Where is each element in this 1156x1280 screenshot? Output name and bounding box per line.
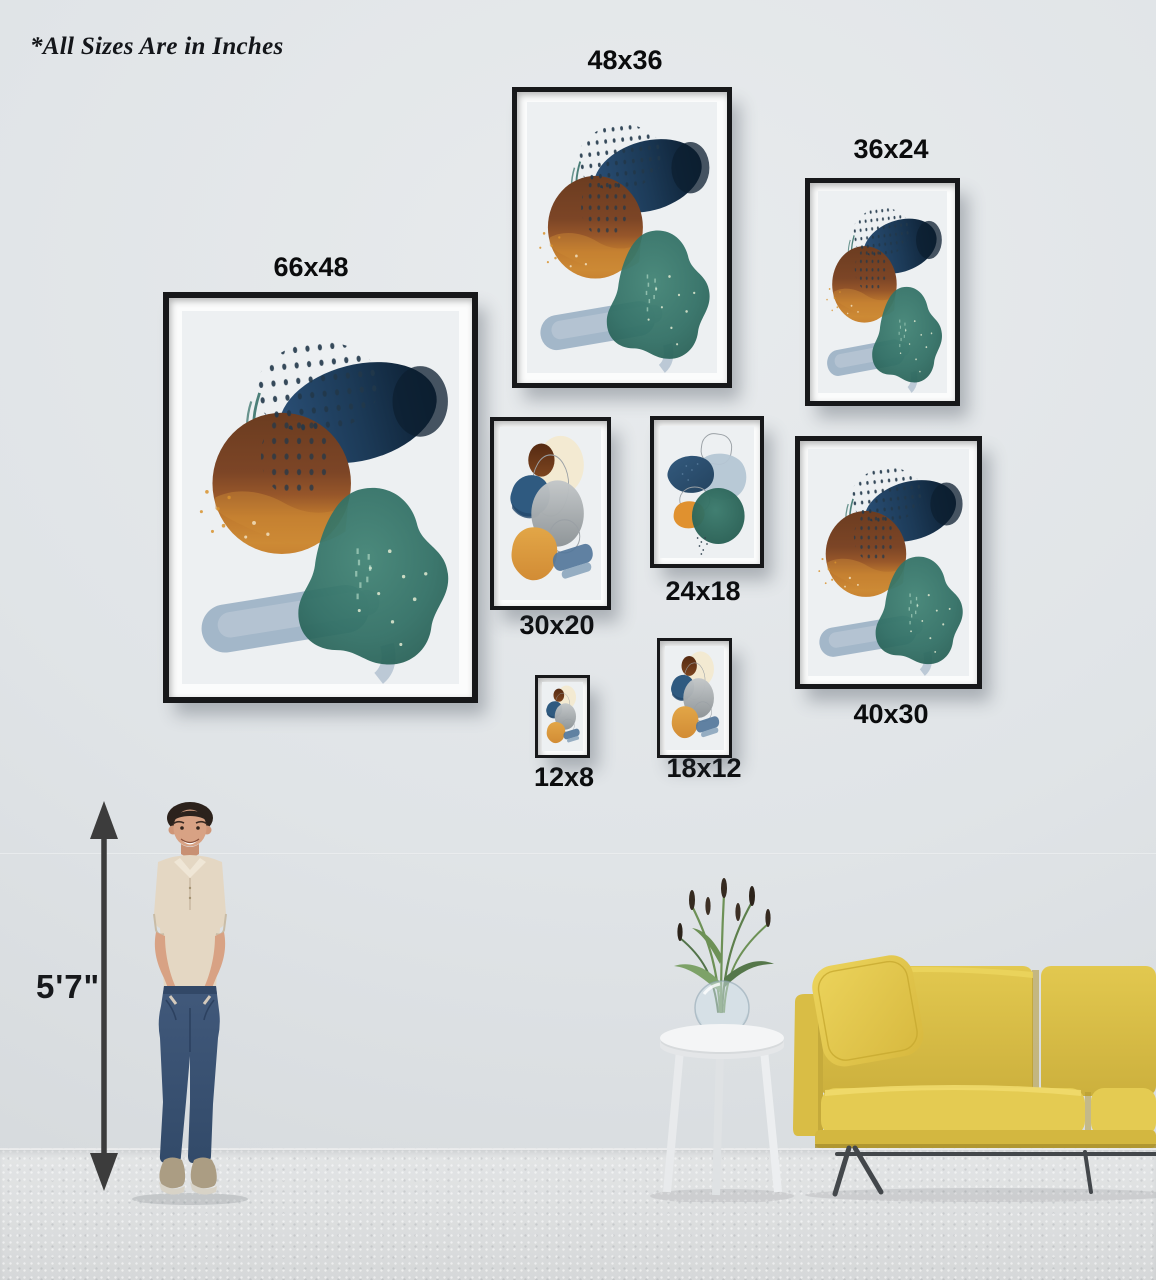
- height-label: 5'7": [36, 968, 100, 1006]
- artwork-abstract-stack: [665, 646, 724, 750]
- size-label-48x36: 48x36: [587, 45, 662, 75]
- frame-24x18: [650, 416, 764, 568]
- table-legs: [667, 1050, 778, 1195]
- frame-40x30: [795, 436, 982, 689]
- sofa-legs: [835, 1148, 1156, 1194]
- sofa-seat-cushion: [1091, 1088, 1156, 1136]
- yellow-sofa: [785, 938, 1156, 1202]
- artwork-abstract-trio: [660, 426, 754, 558]
- frame-12x8: [535, 675, 590, 758]
- frame-30x20: [490, 417, 611, 610]
- frame-66x48: [163, 292, 478, 703]
- sofa-pillow: [809, 952, 927, 1070]
- size-label-30x20: 30x20: [519, 610, 594, 640]
- sofa-back-cushion: [1041, 966, 1156, 1096]
- frame-18x12: [657, 638, 732, 758]
- artwork-abstract-main: [818, 191, 947, 393]
- frame-36x24: [805, 178, 960, 406]
- artwork-abstract-stack: [542, 682, 583, 751]
- artwork-abstract-main: [808, 449, 969, 676]
- size-guide-scene: *All Sizes Are in Inches 66x48 48x36 36x…: [0, 0, 1156, 1280]
- size-label-40x30: 40x30: [853, 699, 928, 729]
- units-note: *All Sizes Are in Inches: [30, 33, 284, 61]
- artwork-abstract-stack: [500, 427, 601, 600]
- sofa-seat-cushion: [821, 1088, 1085, 1136]
- size-label-12x8: 12x8: [534, 762, 594, 792]
- artwork-abstract-main: [182, 311, 459, 684]
- size-label-36x24: 36x24: [853, 134, 928, 164]
- size-label-66x48: 66x48: [273, 252, 348, 282]
- standing-man-figure: [118, 794, 262, 1206]
- size-label-24x18: 24x18: [665, 576, 740, 606]
- frame-48x36: [512, 87, 732, 388]
- artwork-abstract-main: [527, 102, 717, 373]
